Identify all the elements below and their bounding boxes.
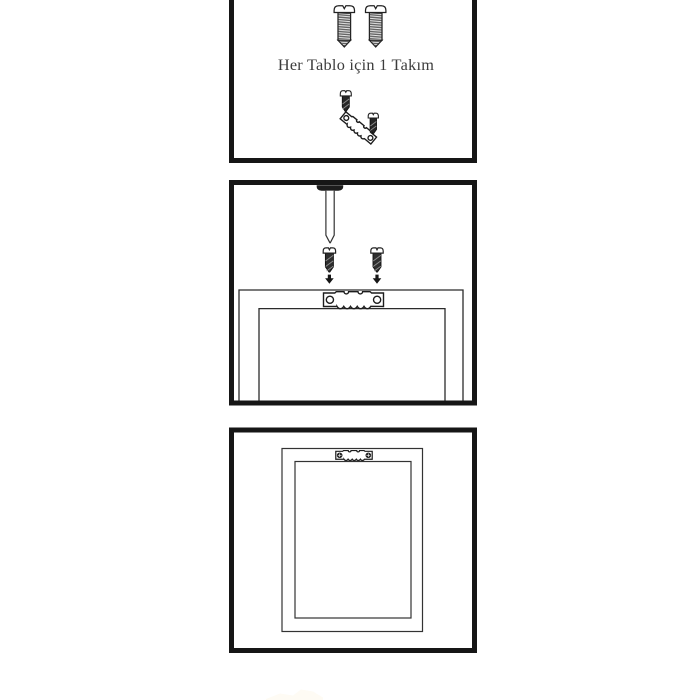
svg-text:Her Tablo için 1 Takım: Her Tablo için 1 Takım xyxy=(278,55,434,74)
